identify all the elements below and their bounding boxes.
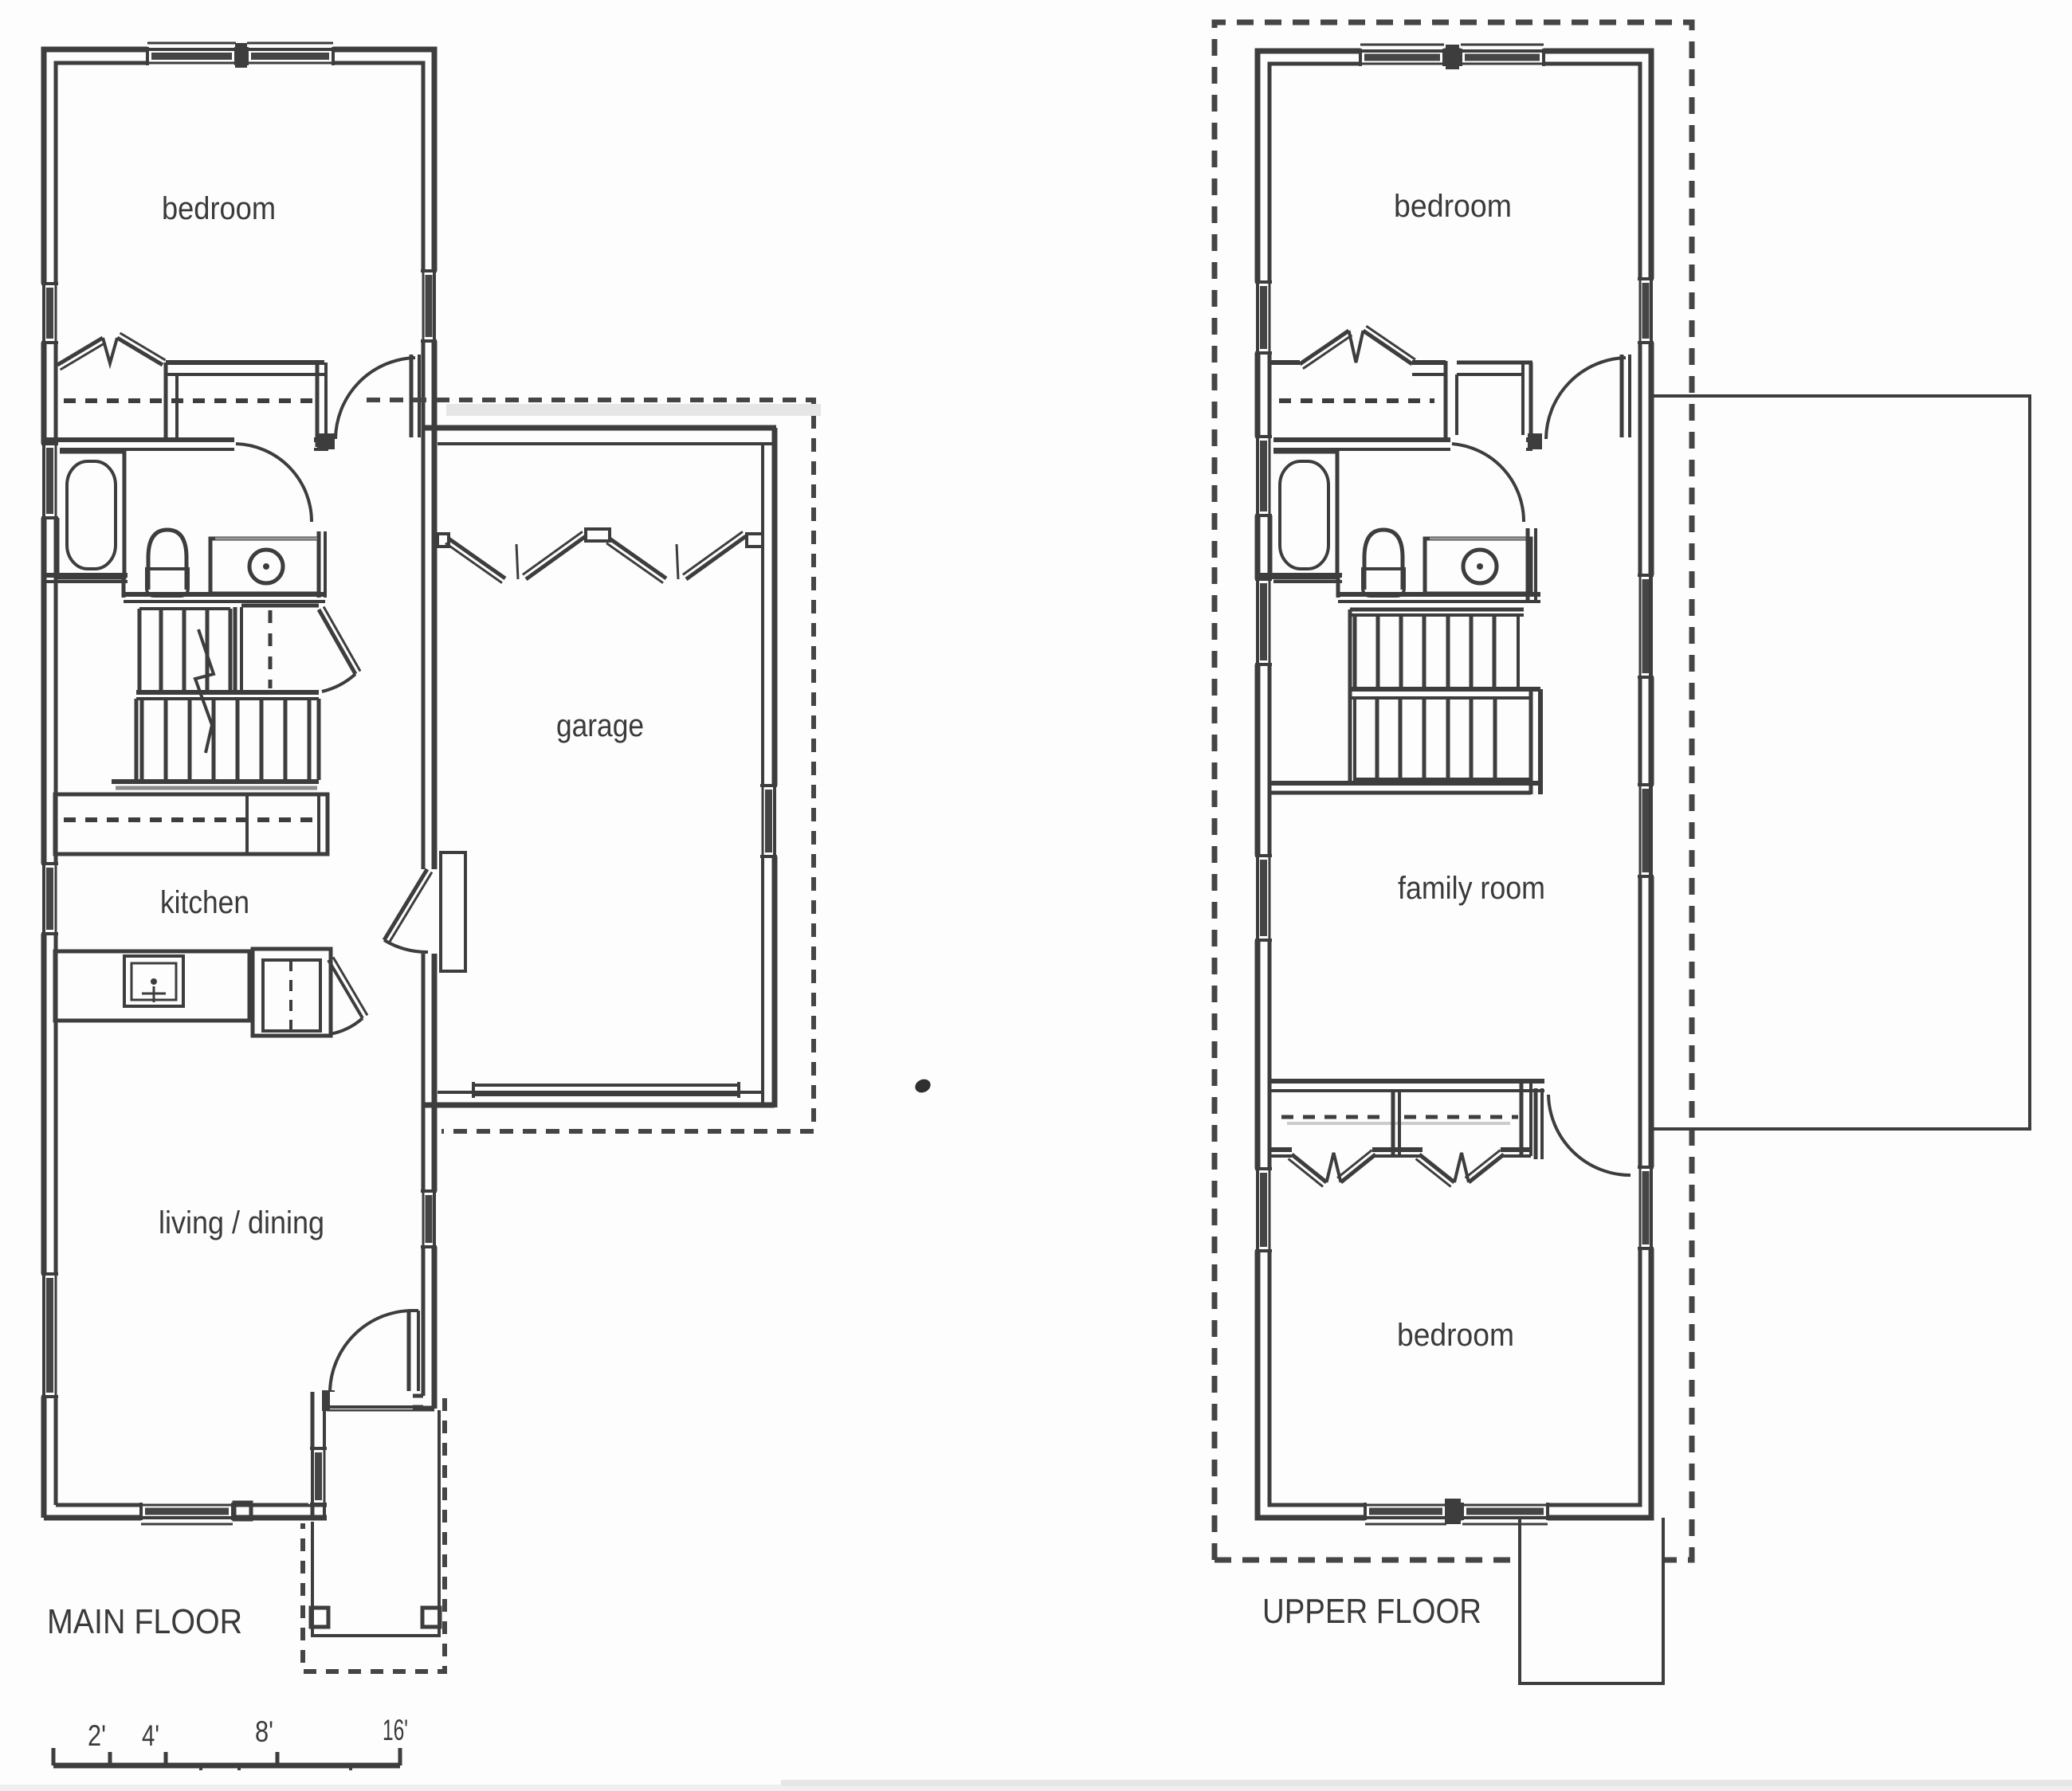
svg-text:2': 2' — [88, 1719, 106, 1752]
svg-text:bedroom: bedroom — [1397, 1318, 1514, 1353]
svg-text:UPPER FLOOR: UPPER FLOOR — [1262, 1592, 1481, 1631]
svg-text:kitchen: kitchen — [160, 885, 249, 920]
svg-text:garage: garage — [556, 708, 644, 743]
svg-text:bedroom: bedroom — [1394, 189, 1512, 224]
svg-text:living / dining: living / dining — [159, 1205, 324, 1240]
svg-text:family room: family room — [1398, 871, 1545, 906]
svg-text:8': 8' — [255, 1715, 273, 1748]
svg-text:4': 4' — [142, 1719, 159, 1752]
svg-text:16': 16' — [383, 1714, 408, 1746]
svg-text:bedroom: bedroom — [162, 191, 276, 226]
svg-text:MAIN FLOOR: MAIN FLOOR — [47, 1602, 242, 1641]
